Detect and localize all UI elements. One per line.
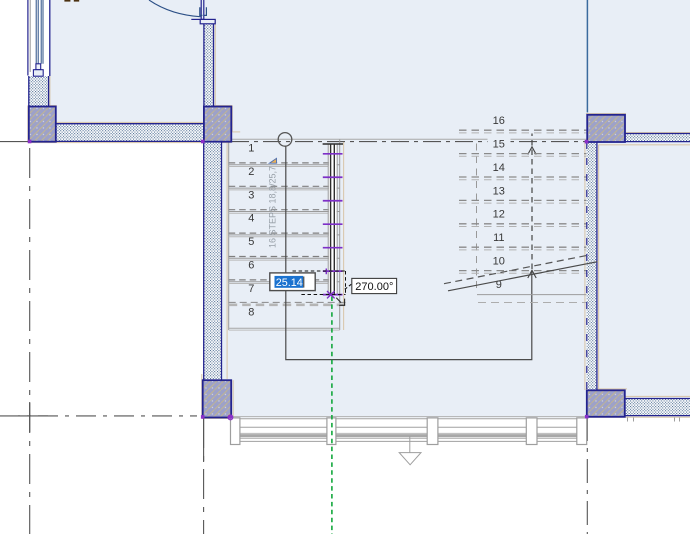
svg-text:16 STEPS 18,8/25,7: 16 STEPS 18,8/25,7	[268, 166, 278, 248]
svg-text:3: 3	[248, 189, 254, 201]
svg-text:7: 7	[248, 283, 254, 295]
svg-text:1: 1	[248, 143, 254, 155]
svg-text:25.14: 25.14	[276, 277, 303, 289]
svg-text:5: 5	[248, 236, 254, 248]
svg-text:16: 16	[493, 115, 505, 127]
svg-text:10: 10	[493, 256, 505, 268]
svg-text:11: 11	[493, 232, 504, 244]
svg-text:2: 2	[248, 166, 254, 178]
svg-text:8: 8	[248, 306, 254, 318]
svg-text:4: 4	[248, 213, 254, 225]
svg-text:270.00°: 270.00°	[355, 281, 393, 293]
svg-text:12: 12	[493, 209, 505, 221]
svg-text:6: 6	[248, 260, 254, 272]
svg-text:14: 14	[493, 162, 505, 174]
svg-text:13: 13	[493, 185, 505, 197]
svg-text:15: 15	[493, 139, 505, 151]
